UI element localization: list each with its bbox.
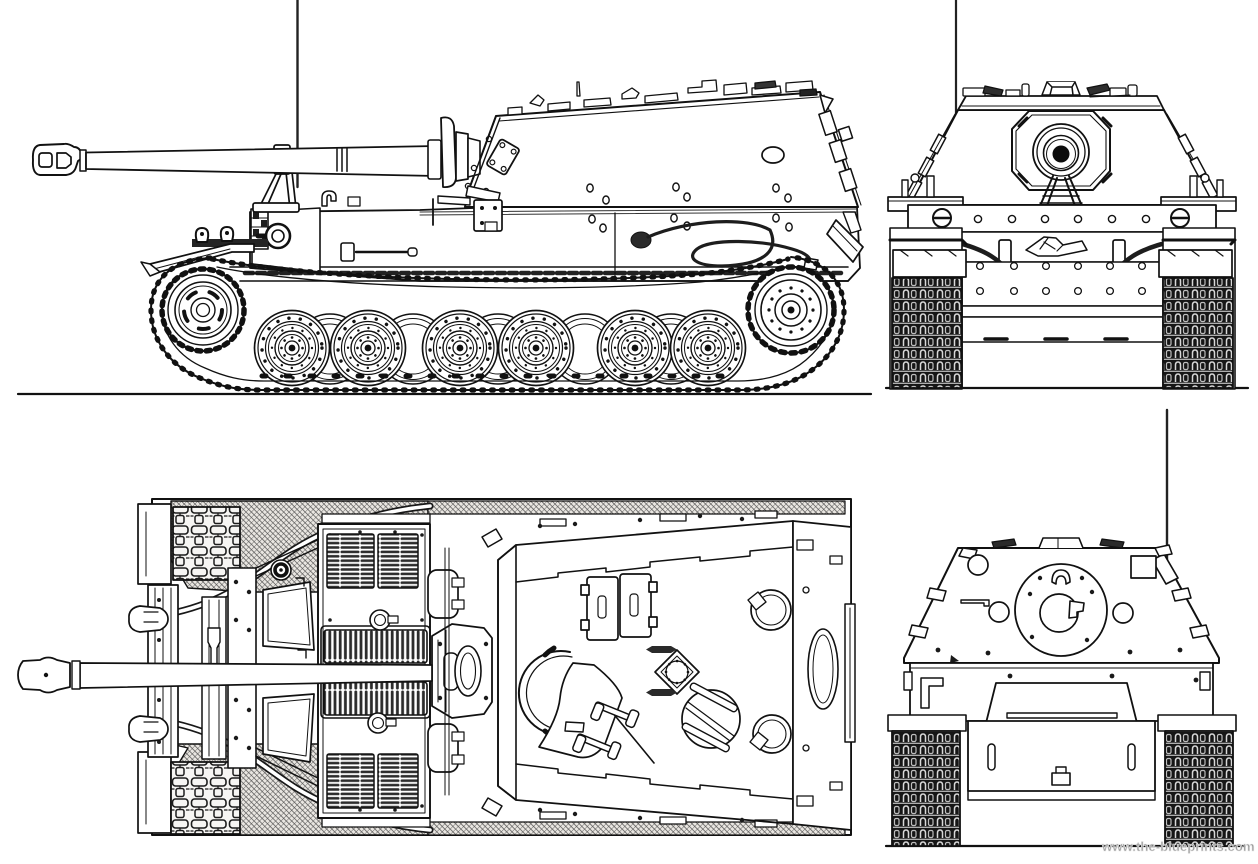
svg-text:www.the-blueprints.com: www.the-blueprints.com <box>1101 839 1255 854</box>
